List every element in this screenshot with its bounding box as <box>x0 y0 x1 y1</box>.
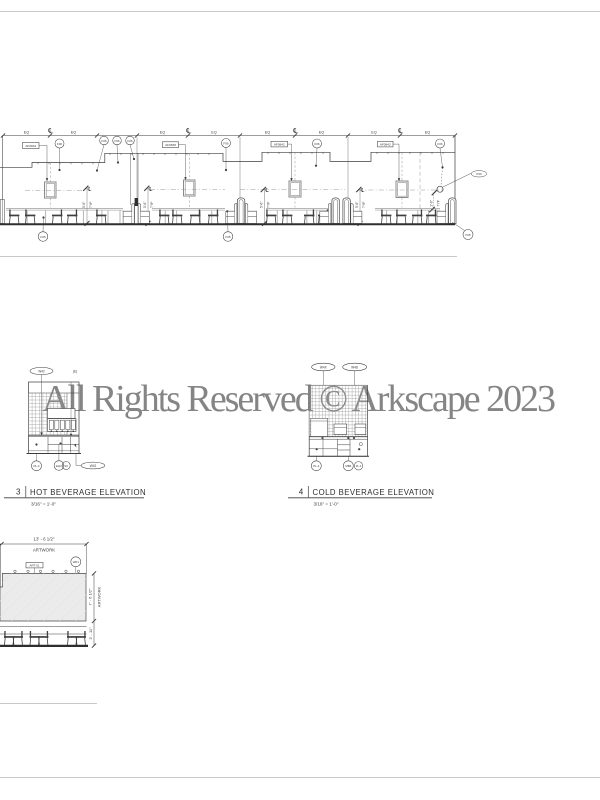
svg-text:AF0842: AF0842 <box>25 144 36 148</box>
svg-text:EQ3: EQ3 <box>56 464 62 468</box>
svg-text:TYP: TYP <box>436 199 440 206</box>
svg-text:3/16" = 1'-0": 3/16" = 1'-0" <box>31 501 56 506</box>
svg-text:TYP: TYP <box>150 201 154 208</box>
svg-text:ARTWORK: ARTWORK <box>33 548 55 553</box>
svg-text:SC: SC <box>64 464 68 468</box>
svg-text:W01: W01 <box>73 560 80 564</box>
svg-text:AF0842: AF0842 <box>274 142 285 146</box>
svg-text:F06: F06 <box>57 142 63 146</box>
svg-text:W4X: W4X <box>320 365 328 369</box>
svg-text:AF0838: AF0838 <box>165 143 176 147</box>
svg-text:13' - 6 1/2": 13' - 6 1/2" <box>34 537 55 542</box>
svg-text:EQ: EQ <box>371 130 377 134</box>
svg-text:3: 3 <box>16 488 21 497</box>
svg-text:4: 4 <box>299 488 304 497</box>
svg-text:3/16" = 1'-0": 3/16" = 1'-0" <box>314 501 339 506</box>
svg-text:TYP: TYP <box>89 201 93 208</box>
svg-text:All Rights Reserved © Arkscape: All Rights Reserved © Arkscape 2023 <box>42 378 556 420</box>
svg-text:5'-6": 5'-6" <box>143 201 147 208</box>
svg-text:COLD BEVERAGE ELEVATION: COLD BEVERAGE ELEVATION <box>313 488 435 497</box>
svg-text:7' - 6 1/2": 7' - 6 1/2" <box>88 588 93 605</box>
svg-text:℄: ℄ <box>360 188 365 194</box>
svg-text:5'-6": 5'-6" <box>260 201 264 208</box>
svg-text:TYP: TYP <box>362 201 366 208</box>
svg-text:℄: ℄ <box>47 128 53 135</box>
svg-text:EQ: EQ <box>71 130 77 134</box>
svg-text:F05: F05 <box>465 233 471 237</box>
svg-text:5'-6": 5'-6" <box>82 201 86 208</box>
svg-text:℄: ℄ <box>264 188 269 194</box>
svg-text:F06: F06 <box>101 139 107 143</box>
svg-text:W42: W42 <box>90 464 97 468</box>
svg-text:F06: F06 <box>114 139 120 143</box>
svg-text:℄: ℄ <box>397 128 403 135</box>
svg-text:AF0842: AF0842 <box>380 142 391 146</box>
svg-text:F06: F06 <box>127 139 133 143</box>
svg-text:PL-4: PL-4 <box>313 464 319 468</box>
svg-text:EQ: EQ <box>319 130 325 134</box>
svg-text:3' - 11": 3' - 11" <box>88 627 93 640</box>
svg-text:F06: F06 <box>437 142 443 146</box>
svg-text:℄: ℄ <box>87 187 92 193</box>
svg-text:F06: F06 <box>314 142 320 146</box>
svg-text:W42: W42 <box>38 369 45 373</box>
svg-text:EQ: EQ <box>211 130 217 134</box>
svg-text:F05: F05 <box>225 235 231 239</box>
svg-text:F05: F05 <box>40 235 46 239</box>
svg-text:ART-01: ART-01 <box>29 564 39 568</box>
svg-text:W4D: W4D <box>351 365 359 369</box>
svg-text:5'-6": 5'-6" <box>355 201 359 208</box>
svg-text:PL-4: PL-4 <box>356 464 362 468</box>
svg-text:℄: ℄ <box>292 128 298 135</box>
svg-text:℄: ℄ <box>148 187 153 193</box>
svg-text:HOT BEVERAGE ELEVATION: HOT BEVERAGE ELEVATION <box>30 488 146 497</box>
svg-text:TYP: TYP <box>267 201 271 208</box>
svg-text:EQ: EQ <box>265 130 271 134</box>
svg-text:(E): (E) <box>73 370 78 374</box>
svg-text:F06: F06 <box>223 141 229 145</box>
svg-text:2'-6": 2'-6" <box>430 199 434 206</box>
svg-text:ARTWORK: ARTWORK <box>97 586 102 607</box>
svg-text:MB6: MB6 <box>345 464 351 468</box>
svg-text:EQ: EQ <box>24 130 30 134</box>
svg-text:EQ: EQ <box>160 130 166 134</box>
svg-text:P20: P20 <box>476 172 482 176</box>
svg-text:℄: ℄ <box>185 128 191 135</box>
svg-text:EQ: EQ <box>425 130 431 134</box>
svg-text:PL-4: PL-4 <box>33 464 39 468</box>
